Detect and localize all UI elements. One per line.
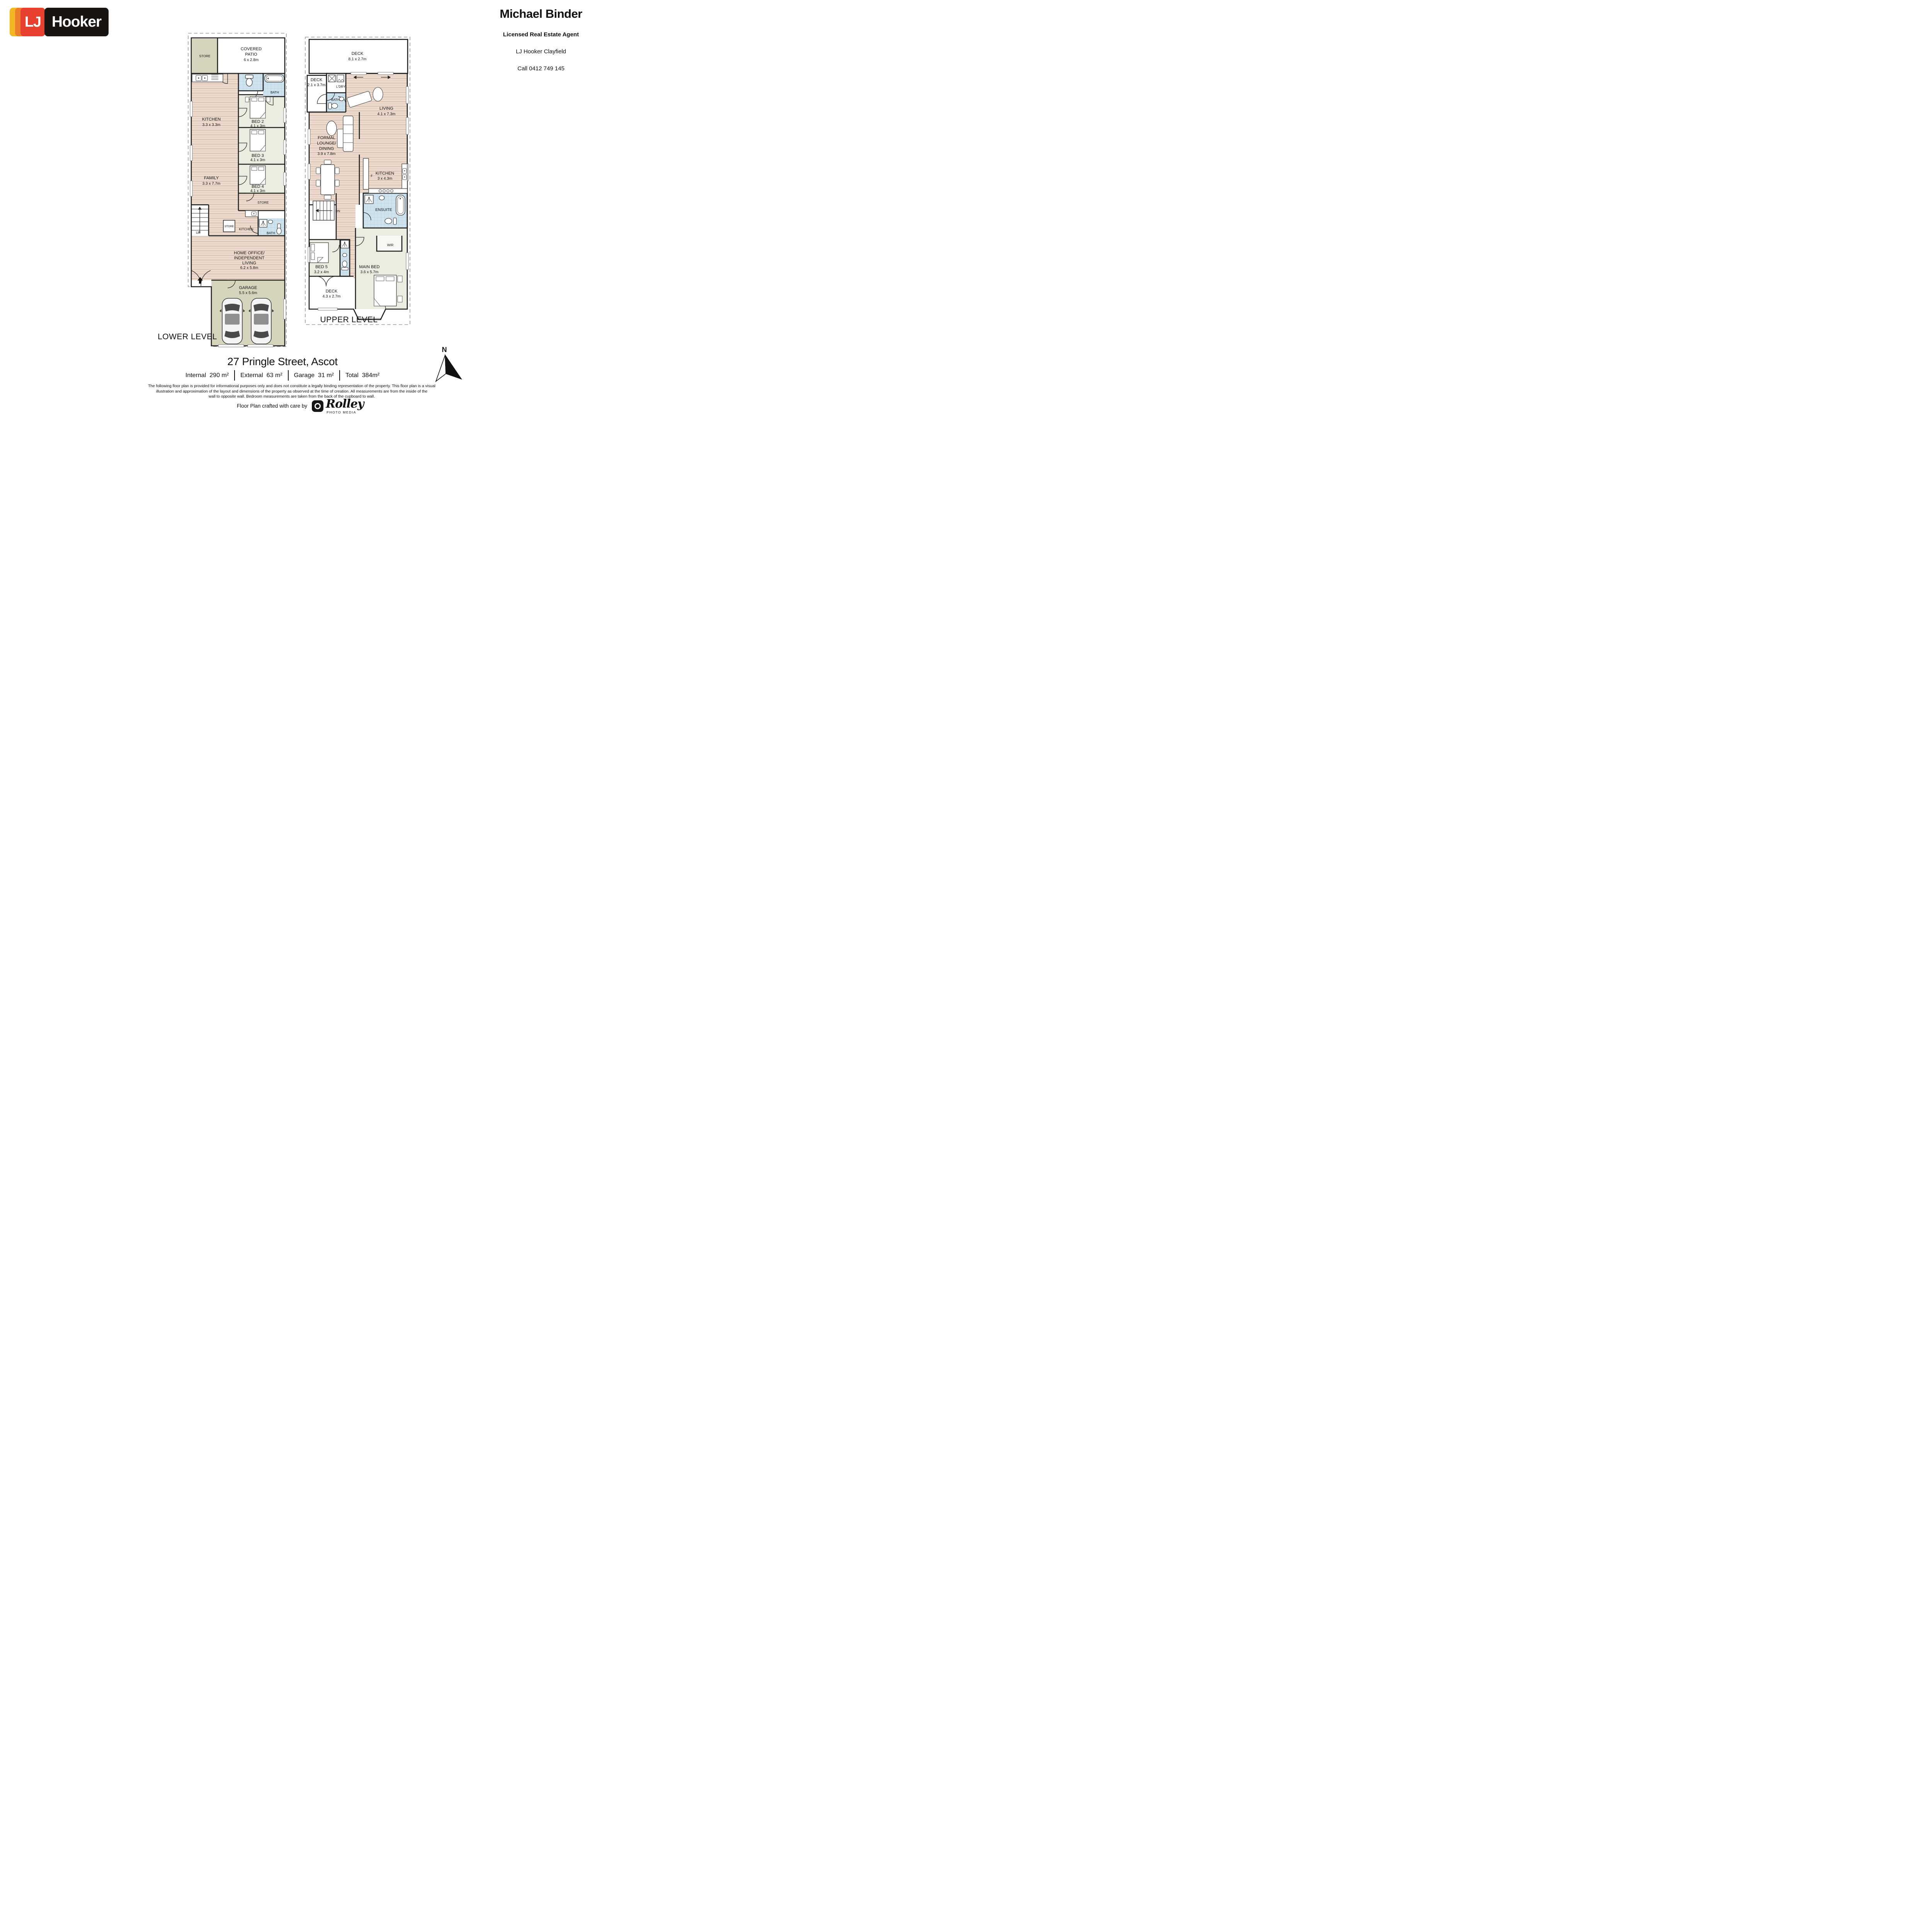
room-label-living: LIVING <box>379 106 393 111</box>
lj-hooker-logo: LJ Hooker <box>10 8 109 36</box>
area-separator <box>339 370 340 381</box>
area-external: External 63 m² <box>240 372 282 379</box>
floorplan-lower-level: STORE COVERED PATIO 6 x 2.8m KITCHEN 3.3… <box>187 32 287 347</box>
camera-icon <box>312 400 323 412</box>
credit-text: Floor Plan crafted with care by <box>237 403 307 409</box>
area-total-value: 384m² <box>362 372 379 379</box>
room-label-deck-left: DECK <box>311 78 323 82</box>
agent-card: Michael Binder Licensed Real Estate Agen… <box>485 7 597 72</box>
room-label-store-mid: STORE <box>257 201 269 204</box>
area-garage-label: Garage <box>294 372 315 379</box>
area-separator <box>234 370 235 381</box>
area-external-label: External <box>240 372 263 379</box>
logo-hooker-text: Hooker <box>52 14 101 31</box>
room-dims-bed4: 4.1 x 3m <box>250 189 265 193</box>
area-separator <box>288 370 289 381</box>
room-label-bath-top: BATH <box>270 90 279 94</box>
rolley-wordmark: Rolley <box>326 397 364 411</box>
room-label-wir: WIR <box>387 243 394 247</box>
stairs-down-label: DN <box>335 209 340 213</box>
shower-icon-lower <box>259 219 267 227</box>
area-total-label: Total <box>345 372 359 379</box>
room-dims-bed2: 4.1 x 3m <box>250 124 265 128</box>
property-address: 27 Pringle Street, Ascot <box>0 355 565 368</box>
stairs-down-icon <box>313 201 334 220</box>
room-label-garage: GARAGE <box>239 286 257 290</box>
room-dims-deck-top: 8.1 x 2.7m <box>349 57 367 61</box>
room-dims-covered-patio: 6 x 2.8m <box>244 58 259 62</box>
room-dims-bed3: 4.1 x 3m <box>250 158 265 162</box>
area-garage-value: 31 m² <box>318 372 334 379</box>
area-total: Total 384m² <box>345 372 379 379</box>
bathtub-icon <box>265 75 284 82</box>
room-label-bed5: BED 5 <box>315 265 328 269</box>
agent-title: Licensed Real Estate Agent <box>485 31 597 38</box>
room-dims-home-office: 6.2 x 5.8m <box>240 266 259 270</box>
room-dims-deck-bottom: 4.3 x 2.7m <box>323 294 341 299</box>
logo-lj-text: LJ <box>25 14 41 31</box>
room-dims-family: 3.3 x 7.7m <box>202 182 221 186</box>
room-label-formal-1: FORMAL <box>318 136 335 140</box>
bed-icon-bed4 <box>250 166 265 184</box>
kitchen-sink-counter <box>192 74 223 82</box>
disclaimer-line-1: The following floor plan is provided for… <box>0 384 583 389</box>
room-label-bath-lower: BATH <box>267 231 275 235</box>
room-label-kitchenette: KITCHEN <box>239 227 253 231</box>
logo-hooker-mark: Hooker <box>44 8 109 36</box>
room-label-covered-patio-2: PATIO <box>245 52 257 57</box>
room-label-home-office-1: HOME OFFICE/ <box>234 251 265 255</box>
area-summary: Internal 290 m² External 63 m² Garage 31… <box>0 370 565 381</box>
room-label-home-office-2: INDEPENDENT <box>234 256 265 260</box>
rolley-photo-media-logo: Rolley PHOTO MEDIA <box>312 399 358 419</box>
room-label-formal-2: LOUNGE/ <box>317 141 336 146</box>
room-label-bed4: BED 4 <box>252 184 264 189</box>
room-dims-kitchen: 3.3 x 3.3m <box>202 123 221 127</box>
logo-lj-mark: LJ <box>20 8 45 36</box>
room-dims-garage: 5.5 x 5.6m <box>239 291 257 295</box>
room-label-main-bed: MAIN BED <box>359 265 379 269</box>
disclaimer-line-2: illustration and approximation of the la… <box>0 389 583 395</box>
room-label-deck-top: DECK <box>352 51 364 56</box>
agent-phone: Call 0412 749 145 <box>485 65 597 72</box>
room-dims-kitchen-upper: 3 x 4.3m <box>378 177 392 181</box>
room-dims-deck-left: 2.1 x 3.7m <box>308 83 326 87</box>
room-dims-living: 4.1 x 7.3m <box>378 112 396 116</box>
room-dims-formal: 3.9 x 7.8m <box>318 152 336 156</box>
fridge-label: F <box>371 174 372 178</box>
agent-name: Michael Binder <box>485 7 597 21</box>
bed-icon-bed3 <box>250 129 265 151</box>
area-external-value: 63 m² <box>267 372 282 379</box>
rolley-photo-media-label: PHOTO MEDIA <box>327 410 356 414</box>
room-label-family: FAMILY <box>204 176 219 180</box>
room-label-ensuite: ENSUITE <box>375 208 392 212</box>
lower-level-title: LOWER LEVEL <box>149 332 226 342</box>
bed-icon-bed5 <box>310 243 328 263</box>
toilet-icon-lower <box>277 224 281 234</box>
area-garage: Garage 31 m² <box>294 372 334 379</box>
disclaimer-text: The following floor plan is provided for… <box>0 384 583 400</box>
room-label-kitchen: KITCHEN <box>202 117 221 122</box>
room-label-store-small: STORE <box>224 225 234 228</box>
compass-n-label: N <box>442 346 447 354</box>
room-label-deck-bottom: DECK <box>326 289 338 294</box>
room-label-kitchen-upper: KITCHEN <box>376 171 394 176</box>
area-internal: Internal 290 m² <box>185 372 229 379</box>
room-dims-main-bed: 3.6 x 5.7m <box>361 270 379 274</box>
kitchenette-counter <box>245 211 258 217</box>
car-icon-2 <box>248 298 274 344</box>
room-label-bed3: BED 3 <box>252 153 264 158</box>
room-label-covered-patio-1: COVERED <box>241 47 262 51</box>
room-label-store-top: STORE <box>199 54 210 58</box>
room-label-home-office-3: LIVING <box>242 261 256 265</box>
area-internal-value: 290 m² <box>209 372 229 379</box>
room-label-bath-upper: BATH <box>331 98 340 102</box>
floorplan-upper-level: DECK 8.1 x 2.7m DECK 2.1 x 3.7m L'DRY BA… <box>304 36 411 325</box>
stairs-up-label: UP <box>196 231 201 235</box>
credit-row: Floor Plan crafted with care by Rolley P… <box>0 399 595 419</box>
room-label-laundry: L'DRY <box>336 85 345 88</box>
toilet-icon <box>245 75 253 86</box>
area-internal-label: Internal <box>185 372 206 379</box>
basin-icon-lower <box>268 220 273 224</box>
upper-level-title: UPPER LEVEL <box>310 315 388 325</box>
room-dims-bed5: 3.2 x 4m <box>314 270 329 274</box>
agent-office: LJ Hooker Clayfield <box>485 48 597 55</box>
room-label-bed2: BED 2 <box>252 119 264 124</box>
room-label-formal-3: DINING <box>319 146 334 151</box>
